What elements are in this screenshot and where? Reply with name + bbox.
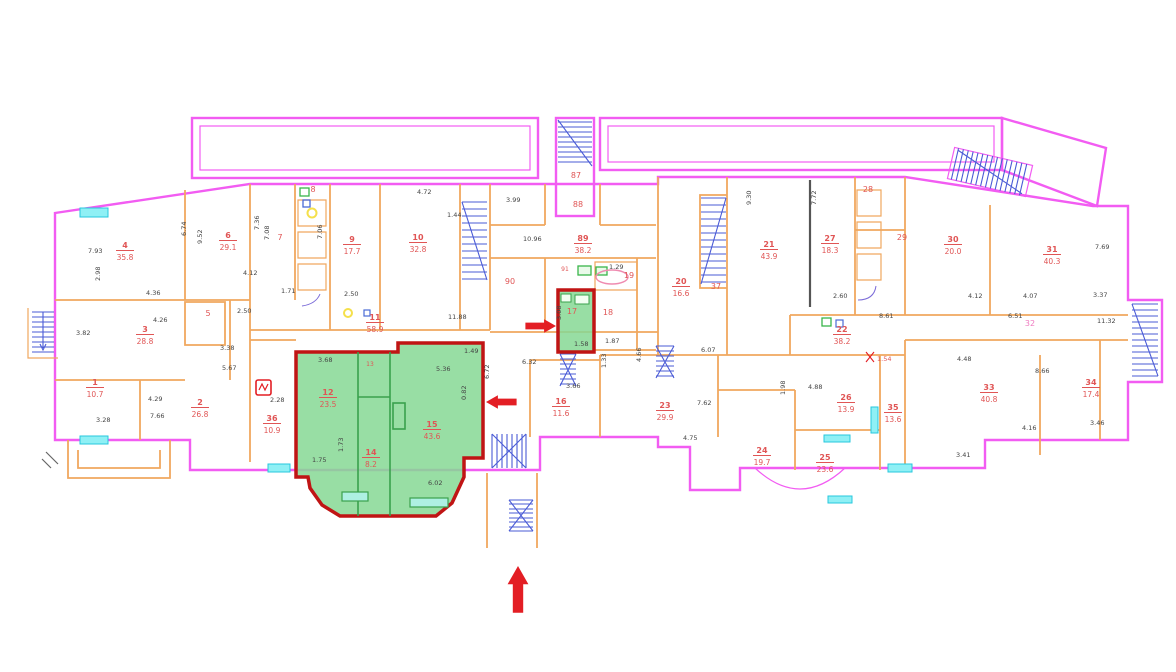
room-label-16: 1611.6 (552, 397, 570, 418)
room-area: 18.3 (822, 246, 839, 255)
room-number: 23 (659, 401, 670, 410)
fixture-in-room-17 (561, 294, 571, 302)
room-area: 43.9 (761, 252, 778, 261)
room-number: 27 (824, 234, 835, 243)
room-label-24: 2419.7 (753, 446, 771, 467)
dimension-label: 1.58 (574, 340, 588, 348)
room-label-22: 2238.2 (833, 325, 851, 346)
label-87: 87 (571, 171, 581, 180)
room-label-25: 2523.6 (816, 453, 834, 474)
label-19: 19 (624, 271, 634, 280)
room-area: 43.6 (424, 432, 441, 441)
dimension-label: 3.46 (1090, 419, 1104, 427)
dimension-label: 1.49 (464, 347, 478, 355)
room-area: 58.9 (367, 325, 384, 334)
dimension-label: 2.98 (94, 267, 102, 281)
dimension-label: 4.29 (148, 395, 162, 403)
stairwell-37-stairs (701, 198, 726, 284)
room-number: 26 (840, 393, 852, 402)
room-area: 13.9 (838, 405, 855, 414)
plumbing-symbol-green (300, 188, 309, 196)
plumbing-symbol-yellow (344, 309, 352, 317)
dimension-label: 1.54 (877, 355, 891, 363)
label-91: 91 (561, 266, 569, 273)
room-area: 23.5 (320, 400, 337, 409)
dimension-label: 4.16 (1022, 424, 1036, 432)
dimension-label: 4.66 (635, 348, 643, 362)
room-number: 6 (225, 231, 231, 240)
room-area: 10.9 (264, 426, 281, 435)
room-number: 33 (983, 383, 994, 392)
room-number: 31 (1046, 245, 1058, 254)
dimension-label: 2.50 (237, 307, 251, 315)
dimension-label: 7.66 (150, 412, 164, 420)
dimension-label: 2.50 (344, 290, 358, 298)
dimension-label: 5.36 (436, 365, 450, 373)
room-label-89: 8938.2 (574, 234, 592, 255)
room-area: 16.6 (673, 289, 690, 298)
label-37: 37 (711, 282, 721, 291)
dimension-label: 2.60 (833, 292, 847, 300)
room-number: 16 (555, 397, 567, 406)
room-number: 24 (756, 446, 768, 455)
room-label-2: 226.8 (191, 398, 209, 419)
dimension-label: 4.72 (417, 188, 431, 196)
room-area: 19.7 (754, 458, 771, 467)
room-label-27: 2718.3 (821, 234, 839, 255)
dimension-label: 7.93 (88, 247, 102, 255)
room-area: 29.9 (657, 413, 674, 422)
room-label-36: 3610.9 (263, 414, 281, 435)
dimension-label: 6.72 (483, 365, 491, 379)
left-external-stairs (28, 308, 58, 358)
dimension-label: 6.07 (701, 346, 715, 354)
dimension-label: 8.66 (1035, 367, 1049, 375)
label-8: 8 (310, 185, 315, 194)
room-area: 29.1 (220, 243, 237, 252)
dimension-label: 11.32 (1097, 317, 1116, 325)
dimension-label: 7.08 (263, 226, 271, 240)
label-28: 28 (863, 185, 873, 194)
ground-hatch-mark (42, 452, 58, 468)
dimension-label: 2.28 (270, 396, 284, 404)
right-stairwell-stairs (1132, 304, 1158, 376)
dimension-label: 3.99 (506, 196, 520, 204)
room-label-35: 3513.6 (884, 403, 902, 424)
exterior-walls (42, 177, 1162, 490)
dimension-label: 7.62 (697, 399, 711, 407)
dimension-label: 3.37 (1093, 291, 1107, 299)
label-32: 32 (1025, 319, 1035, 328)
arrow-into-apartment (486, 395, 517, 409)
sink-symbol (578, 266, 591, 275)
dimension-label: 6.32 (522, 358, 536, 366)
dimension-label: 7.36 (253, 216, 261, 230)
dimension-label: 9.30 (745, 191, 753, 205)
room-area: 10.7 (87, 390, 104, 399)
room-label-34: 3417.4 (1082, 378, 1100, 399)
dimension-label: 1.29 (609, 263, 623, 271)
dimension-label: 3.38 (220, 344, 234, 352)
dimension-label: 3.41 (956, 451, 970, 459)
dimension-label: 10.96 (523, 235, 542, 243)
room-label-30: 3020.0 (944, 235, 962, 256)
label-29: 29 (897, 233, 907, 242)
main-entrance-arrow (508, 566, 529, 613)
room-area: 40.3 (1044, 257, 1061, 266)
room-number: 14 (365, 448, 377, 457)
dimension-label: 3.68 (318, 356, 332, 364)
room-number: 11 (369, 313, 381, 322)
room-number: 12 (322, 388, 333, 397)
room-number: 1 (92, 378, 98, 387)
dimension-label: 7.72 (810, 191, 818, 205)
dimension-label: 1.44 (447, 211, 461, 219)
label-88: 88 (573, 200, 583, 209)
dimension-label: 9.52 (196, 230, 204, 244)
room-label-3: 328.8 (136, 325, 154, 346)
room-label-21: 2143.9 (760, 240, 778, 261)
dimension-label: 11.88 (448, 313, 467, 321)
plumbing-symbol-blue (303, 200, 310, 207)
room-label-1: 110.7 (86, 378, 104, 399)
door-opening-mark (866, 352, 874, 362)
label-90: 90 (505, 277, 515, 286)
dimension-label: 1.75 (312, 456, 326, 464)
room-label-4: 435.8 (116, 241, 134, 262)
room-area: 32.8 (410, 245, 427, 254)
room-number: 30 (947, 235, 959, 244)
room-number: 10 (412, 233, 424, 242)
room-label-33: 3340.8 (980, 383, 998, 404)
dimension-label: 3.28 (96, 416, 110, 424)
room-area: 17.4 (1083, 390, 1100, 399)
room-number: 34 (1085, 378, 1097, 387)
stairwell-87-stairs (558, 120, 592, 166)
room-area: 23.6 (817, 465, 834, 474)
room-number: 25 (819, 453, 831, 462)
dimension-label: 4.88 (808, 383, 822, 391)
room-number: 36 (266, 414, 278, 423)
dimension-label: 4.36 (146, 289, 160, 297)
room-number: 15 (426, 420, 438, 429)
stairwell-left-center-stairs (462, 202, 487, 280)
label-7: 7 (277, 233, 282, 242)
arrow-into-unit-17 (525, 319, 556, 333)
room-label-23: 2329.9 (656, 401, 674, 422)
label-5: 5 (205, 309, 210, 318)
room-area: 8.2 (365, 460, 377, 469)
room-number: 9 (349, 235, 355, 244)
dimension-label: 7.06 (316, 225, 324, 239)
dimension-label: 4.12 (243, 269, 257, 277)
room-label-11: 1158.9 (366, 313, 384, 334)
room-label-26: 2613.9 (837, 393, 855, 414)
label-13: 13 (366, 361, 374, 368)
small-stair-symbol-right (656, 346, 674, 378)
dimension-label: 4.26 (153, 316, 167, 324)
room-area: 40.8 (981, 395, 998, 404)
dimension-label: 6.74 (180, 222, 188, 236)
room-number: 3 (142, 325, 148, 334)
floor-plan-svg: 7.932.986.749.524.364.263.824.121.712.50… (0, 0, 1176, 672)
room-label-20: 2016.6 (672, 277, 690, 298)
room-area: 26.8 (192, 410, 209, 419)
dimension-label: 1.71 (281, 287, 295, 295)
entrance-vestibule-stairs (492, 434, 526, 468)
elevator-symbol (256, 380, 271, 395)
dimension-label: 3.82 (76, 329, 90, 337)
room-number: 4 (122, 241, 128, 250)
dimension-label: 6.02 (428, 479, 442, 487)
room-number: 35 (887, 403, 899, 412)
dimension-label: 4.48 (957, 355, 971, 363)
dimension-label: 8.61 (879, 312, 893, 320)
bay-window (342, 492, 368, 501)
room-number: 20 (675, 277, 687, 286)
room-area: 38.2 (575, 246, 592, 255)
dimension-label: 1.87 (605, 337, 619, 345)
dimension-label: 4.07 (1023, 292, 1037, 300)
dimension-label: 0.82 (460, 386, 468, 400)
bay-window (410, 498, 448, 507)
dimension-label: 1.33 (600, 354, 608, 368)
room-number: 89 (577, 234, 589, 243)
dimension-label: 7.69 (1095, 243, 1109, 251)
dimension-labels-layer: 7.932.986.749.524.364.263.824.121.712.50… (76, 188, 1116, 487)
room-label-9: 917.7 (343, 235, 361, 256)
room-number: 2 (197, 398, 203, 407)
dimension-label: 1.73 (337, 438, 345, 452)
dimension-label: 5.67 (222, 364, 236, 372)
room-label-10: 1032.8 (409, 233, 427, 254)
room-number: 21 (763, 240, 775, 249)
room-area: 38.2 (834, 337, 851, 346)
label-17: 17 (567, 307, 577, 316)
label-18: 18 (603, 308, 613, 317)
dimension-label: 4.75 (683, 434, 697, 442)
dimension-label: 3.66 (566, 382, 580, 390)
room-area: 11.6 (553, 409, 570, 418)
room-area: 35.8 (117, 253, 134, 262)
dimension-label: 6.51 (1008, 312, 1022, 320)
plumbing-symbol-green (822, 318, 831, 326)
room-area: 20.0 (945, 247, 962, 256)
plumbing-symbol-yellow (308, 209, 317, 218)
room-label-31: 3140.3 (1043, 245, 1061, 266)
dimension-label: 4.12 (968, 292, 982, 300)
room-area: 17.7 (344, 247, 361, 256)
main-entrance-stairs (509, 500, 533, 531)
room-area: 13.6 (885, 415, 902, 424)
fixture-in-room-17 (575, 295, 589, 304)
room-area: 28.8 (137, 337, 154, 346)
dimension-label: 3.08 (555, 306, 563, 320)
dimension-label: 1.98 (779, 381, 787, 395)
room-number: 22 (836, 325, 847, 334)
room-label-6: 629.1 (219, 231, 237, 252)
